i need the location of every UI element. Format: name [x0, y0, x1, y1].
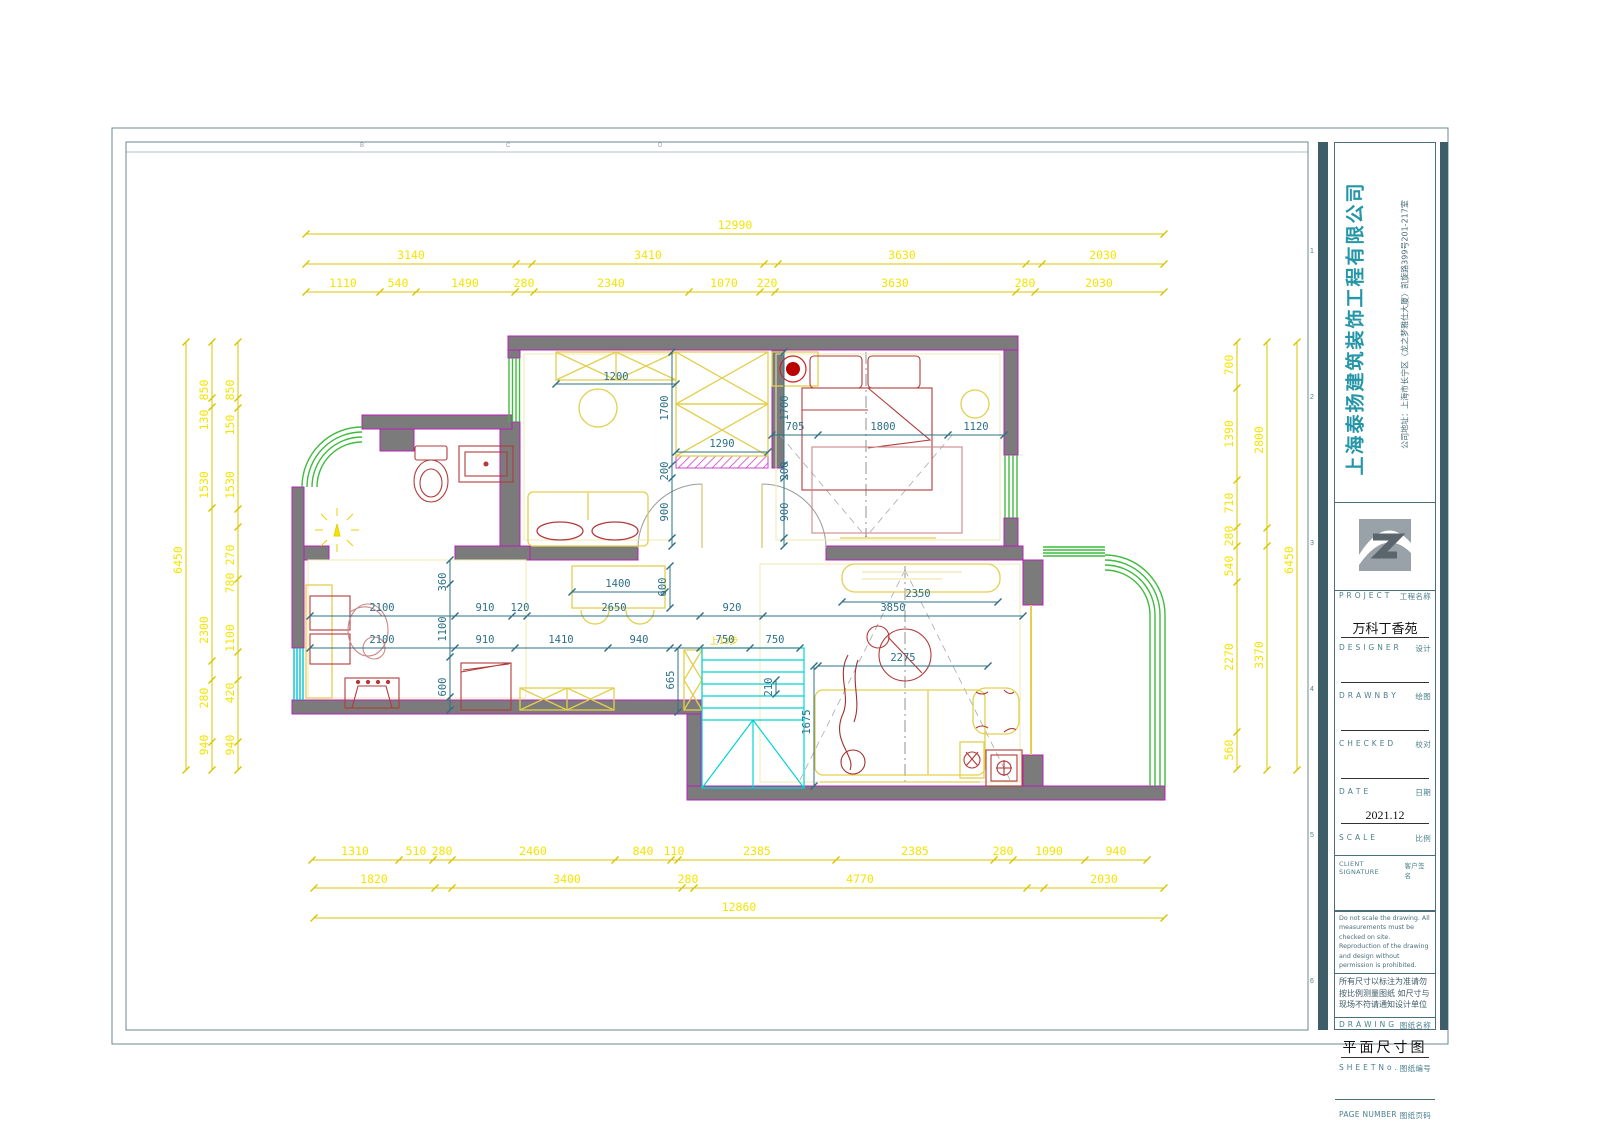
company-address: 公司地址：上海市长宁区〈龙之梦雅仕大厦〉凯旋路399号201-217室 [1400, 155, 1411, 495]
drawn-label-cn: 绘图 [1415, 691, 1431, 702]
svg-text:6450: 6450 [1282, 546, 1296, 574]
svg-text:280: 280 [432, 844, 453, 858]
designer-label-cn: 设计 [1415, 643, 1431, 654]
svg-text:1400: 1400 [605, 578, 630, 590]
svg-text:1530: 1530 [223, 471, 237, 499]
svg-text:1100: 1100 [223, 624, 237, 652]
svg-text:120: 120 [511, 602, 530, 614]
cad-sheet: { "title_block": { "company_name": "上海泰扬… [0, 0, 1600, 1131]
company-logo [1335, 503, 1435, 589]
bean-bag [973, 688, 1019, 734]
svg-text:280: 280 [678, 872, 699, 886]
svg-text:2030: 2030 [1085, 276, 1113, 290]
grid-row-label: 3 [1310, 540, 1314, 547]
svg-text:270: 270 [223, 545, 237, 566]
client-signature-box: CLIENT SIGNATURE 客户签名 [1335, 855, 1435, 911]
svg-text:3630: 3630 [888, 248, 916, 262]
svg-text:1100: 1100 [437, 616, 449, 641]
svg-text:2100: 2100 [369, 634, 394, 646]
drawn-label-en: D R A W N B Y [1339, 691, 1396, 702]
svg-text:600: 600 [657, 578, 669, 597]
svg-text:2275: 2275 [890, 652, 915, 664]
checked-label-en: C H E C K E D [1339, 739, 1394, 750]
company-name: 上海泰扬建筑装饰工程有限公司 [1341, 164, 1368, 494]
svg-text:220: 220 [757, 276, 778, 290]
svg-text:6450: 6450 [171, 546, 185, 574]
svg-text:1390: 1390 [1222, 420, 1236, 448]
bedside-lamp [961, 390, 989, 418]
title-strip-right-bar [1440, 142, 1448, 1030]
title-strip-left-bar [1318, 142, 1328, 1030]
svg-text:1310: 1310 [341, 844, 369, 858]
svg-text:920: 920 [723, 602, 742, 614]
svg-text:2385: 2385 [901, 844, 929, 858]
page-label-cn: 图纸页码 [1400, 1110, 1431, 1121]
svg-text:1675: 1675 [801, 709, 813, 734]
outer-dim-text: 12990 3140 3410 3630 2030 1110 540 1490 … [171, 218, 1296, 914]
drawing-name-value: 平面尺寸图 [1341, 1037, 1429, 1058]
svg-text:940: 940 [223, 735, 237, 756]
svg-text:1700: 1700 [779, 395, 791, 420]
sheet-label-cn: 图纸编号 [1400, 1063, 1431, 1074]
date-label-en: D A T E [1339, 787, 1368, 798]
designer-label-en: D E S I G N E R [1339, 643, 1399, 654]
svg-text:665: 665 [665, 671, 677, 690]
svg-text:705: 705 [786, 421, 805, 433]
svg-text:280: 280 [514, 276, 535, 290]
grid-col-label: C [506, 143, 510, 149]
svg-text:1820: 1820 [360, 872, 388, 886]
svg-text:1110: 1110 [329, 276, 357, 290]
project-value: 万科丁香苑 [1341, 618, 1429, 638]
svg-text:700: 700 [1222, 355, 1236, 376]
bay-window-right [1105, 555, 1165, 786]
kitchen-window [294, 648, 303, 700]
note-chinese: 所有尺寸以标注为准请勿按比例测量图纸 如尺寸与现场不符请通知设计单位 [1335, 973, 1435, 1015]
svg-text:200: 200 [779, 462, 791, 481]
hatched-wall [676, 456, 768, 468]
svg-text:280: 280 [993, 844, 1014, 858]
svg-text:12860: 12860 [722, 900, 757, 914]
svg-text:850: 850 [197, 380, 211, 401]
svg-text:710: 710 [1222, 493, 1236, 514]
svg-text:910: 910 [476, 634, 495, 646]
svg-text:280: 280 [1015, 276, 1036, 290]
grid-col-label: D [658, 143, 662, 149]
project-label-en: P R O J E C T [1339, 591, 1390, 602]
scale-label-cn: 比例 [1415, 833, 1431, 844]
note-english: Do not scale the drawing. All measuremen… [1335, 911, 1435, 969]
sheet-label-en: S H E E T N o . [1339, 1063, 1397, 1074]
grid-row-label: 2 [1310, 394, 1314, 401]
svg-text:2270: 2270 [1222, 643, 1236, 671]
grid-row-label: 5 [1310, 832, 1314, 839]
svg-text:200: 200 [659, 462, 671, 481]
svg-text:1700: 1700 [659, 395, 671, 420]
svg-text:2385: 2385 [743, 844, 771, 858]
drawing-label-cn: 图纸名称 [1400, 1020, 1431, 1031]
svg-text:900: 900 [779, 503, 791, 522]
grid-col-label: B [360, 143, 364, 149]
date-value: 2021.12 [1341, 808, 1429, 824]
svg-text:900: 900 [659, 503, 671, 522]
svg-text:560: 560 [1222, 740, 1236, 761]
svg-text:850: 850 [223, 380, 237, 401]
svg-text:750: 750 [716, 634, 735, 646]
date-label-cn: 日期 [1415, 787, 1431, 798]
svg-text:1070: 1070 [710, 276, 738, 290]
svg-text:360: 360 [437, 573, 449, 592]
svg-text:780: 780 [223, 573, 237, 594]
svg-text:110: 110 [664, 844, 685, 858]
svg-text:210: 210 [763, 678, 775, 697]
grid-row-label: 4 [1310, 686, 1314, 693]
svg-text:940: 940 [630, 634, 649, 646]
title-block: 上海泰扬建筑装饰工程有限公司 公司地址：上海市长宁区〈龙之梦雅仕大厦〉凯旋路39… [1334, 142, 1436, 1030]
client-label-cn: 客户签名 [1404, 860, 1431, 880]
svg-text:280: 280 [197, 688, 211, 709]
svg-text:3140: 3140 [397, 248, 425, 262]
svg-text:3410: 3410 [634, 248, 662, 262]
svg-text:150: 150 [223, 415, 237, 436]
svg-text:3630: 3630 [881, 276, 909, 290]
svg-text:1410: 1410 [548, 634, 573, 646]
company-box: 上海泰扬建筑装饰工程有限公司 公司地址：上海市长宁区〈龙之梦雅仕大厦〉凯旋路39… [1335, 143, 1435, 503]
svg-text:2100: 2100 [369, 602, 394, 614]
svg-text:510: 510 [406, 844, 427, 858]
svg-text:540: 540 [1222, 556, 1236, 577]
svg-text:2300: 2300 [197, 616, 211, 644]
svg-text:600: 600 [437, 678, 449, 697]
walls [292, 336, 1165, 800]
svg-text:2650: 2650 [601, 602, 626, 614]
svg-text:840: 840 [633, 844, 654, 858]
svg-text:1800: 1800 [870, 421, 895, 433]
grid-row-label: 1 [1310, 248, 1314, 255]
bay-window-left [302, 427, 362, 487]
svg-text:3400: 3400 [553, 872, 581, 886]
light-symbol [315, 508, 359, 552]
svg-text:12990: 12990 [718, 218, 753, 232]
svg-text:750: 750 [766, 634, 785, 646]
grid-row-label: 6 [1310, 978, 1314, 985]
page-label-en: PAGE NUMBER [1339, 1110, 1397, 1121]
svg-text:540: 540 [388, 276, 409, 290]
svg-text:130: 130 [197, 410, 211, 431]
svg-text:940: 940 [1106, 844, 1127, 858]
drawing-label-en: D R A W I N G [1339, 1020, 1394, 1031]
project-label-cn: 工程名称 [1400, 591, 1431, 602]
svg-text:2340: 2340 [597, 276, 625, 290]
svg-text:1490: 1490 [451, 276, 479, 290]
svg-text:2030: 2030 [1089, 248, 1117, 262]
svg-text:1290: 1290 [709, 438, 734, 450]
svg-text:1530: 1530 [197, 471, 211, 499]
svg-text:940: 940 [197, 735, 211, 756]
svg-text:3370: 3370 [1252, 641, 1266, 669]
svg-text:2030: 2030 [1090, 872, 1118, 886]
svg-text:2460: 2460 [519, 844, 547, 858]
sheet-frame [112, 128, 1448, 1044]
svg-text:1090: 1090 [1035, 844, 1063, 858]
svg-text:4770: 4770 [846, 872, 874, 886]
svg-text:2800: 2800 [1252, 426, 1266, 454]
svg-text:1120: 1120 [963, 421, 988, 433]
outer-dim-lines [183, 231, 1301, 922]
checked-label-cn: 校对 [1415, 739, 1431, 750]
staircase [702, 648, 804, 788]
svg-text:910: 910 [476, 602, 495, 614]
pendant-light [579, 389, 617, 427]
svg-text:280: 280 [1222, 526, 1236, 547]
logo-box [1335, 503, 1435, 591]
svg-text:420: 420 [223, 683, 237, 704]
svg-text:1200: 1200 [603, 371, 628, 383]
svg-text:3850: 3850 [880, 602, 905, 614]
svg-text:2350: 2350 [905, 588, 930, 600]
client-label-en: CLIENT SIGNATURE [1339, 860, 1404, 880]
scale-label-en: S C A L E [1339, 833, 1375, 844]
